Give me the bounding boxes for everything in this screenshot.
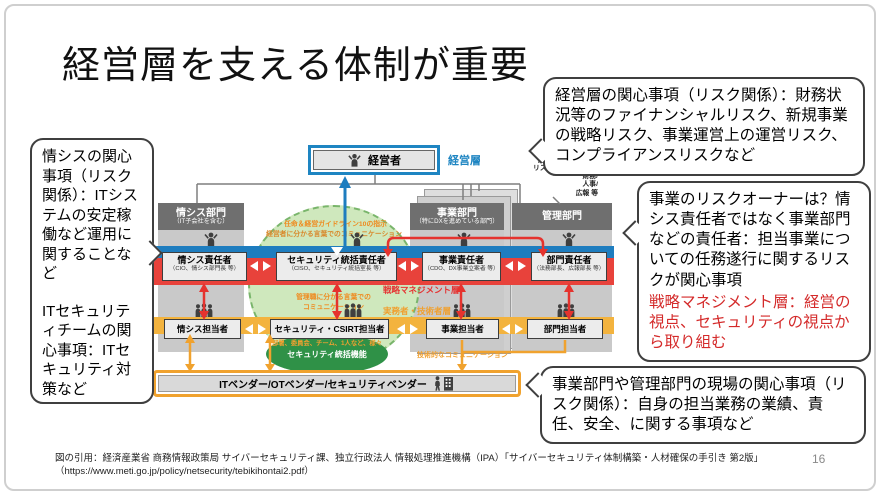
note-appointment: 任命＆経営ガイドライン10の指示 [258,218,413,228]
manager-sub: （CISO、セキュリティ統括室長 等） [277,266,396,272]
manager-title: 事業責任者 [423,255,500,266]
vendor-box-inner: ITベンダー/OTベンダー/セキュリティベンダー [158,375,516,392]
left-right-arrows-icon [245,324,266,334]
callout-left-paragraph-1: 情シスの関心事項（リスク関係）：ITシステムの安定稼働など運用に関することなど [42,147,142,284]
manager-title: 情シス責任者 [163,255,246,266]
left-right-arrows-icon [505,261,526,271]
citation: 図の引用：経済産業省 商務情報政策局 サイバーセキュリティ課、独立行政法人 情報… [55,452,763,479]
left-right-arrows-icon [502,324,523,334]
executive-person-icon [347,153,362,167]
people-group-icon [452,303,472,322]
person-icon [349,232,365,251]
citation-line-1: 図の引用：経済産業省 商務情報政策局 サイバーセキュリティ課、独立行政法人 情報… [55,452,763,465]
vendor-person-building-icon [433,376,455,391]
staff-box-admin: 部門担当者 [527,319,603,339]
executive-label: 経営者 [368,152,401,168]
note-technical-communication: 技術的なコミュニケーション [417,350,508,360]
staff-box-security-csirt: セキュリティ・CSIRT担当者 [270,319,389,339]
dept-it-header: 情シス部門 （IT子会社を含む） [158,203,244,230]
executive-box-inner: 経営者 [313,150,435,170]
manager-title: 部門責任者 [532,255,606,266]
note-team-forms: 部署、委員会、チーム、1人など、様々 [262,338,392,347]
left-right-arrows-icon [250,261,271,271]
page-title: 経営層を支える体制が重要 [62,34,529,89]
manager-title: セキュリティ統括責任者 [277,255,396,266]
note-exec-communication: 経営者に分かる言葉でのコミュニケーション [250,228,418,238]
manager-sub: （法務部長、広報部長 等） [532,266,606,272]
dept-business-sub: （特にDXを進めている部門） [410,219,504,226]
vendor-label: ITベンダー/OTベンダー/セキュリティベンダー [219,376,427,391]
citation-line-2: （https://www.meti.go.jp/policy/netsecuri… [55,465,763,478]
people-group-icon [194,303,214,322]
callout-midright-black-text: 事業のリスクオーナーは？情シス責任者ではなく事業部門などの責任者：担当事業につい… [649,190,859,291]
manager-box-business: 事業責任者 （CDO、DX事業立案者 等） [422,252,501,281]
people-group-icon [343,303,363,322]
dept-business-header: 事業部門 （特にDXを進めている部門） [410,203,504,230]
person-icon [561,232,577,251]
callout-botright-text: 事業部門や管理部門の現場の関心事項（リスク関係）：自身の担当業務の業績、責任、安… [552,375,854,435]
executive-layer-label: 経営層 [448,152,481,168]
callout-midright-red-text: 戦略マネジメント層：経営の視点、セキュリティの視点から取り組む [649,293,859,353]
manager-box-security: セキュリティ統括責任者 （CISO、セキュリティ統括室長 等） [276,252,397,281]
person-icon [203,232,219,251]
callout-risk-owner: 事業のリスクオーナーは？情シス責任者ではなく事業部門などの責任者：担当事業につい… [637,181,871,362]
callout-left-paragraph-2: ITセキュリティチームの関心事項：ITセキュリティ対策など [42,302,142,400]
people-group-icon [556,303,576,322]
callout-topright-text: 経営層の関心事項（リスク関係）：財務状況等のファイナンシャルリスク、新規事業の戦… [555,86,853,167]
manager-box-admin: 部門責任者 （法務部長、広報部長 等） [531,252,607,281]
left-right-arrows-icon [398,261,419,271]
operational-layer-label: 実務者・技術者層 [383,305,451,317]
person-icon [456,232,472,251]
callout-executive-concerns: 経営層の関心事項（リスク関係）：財務状況等のファイナンシャルリスク、新規事業の戦… [543,77,865,176]
vendor-box: ITベンダー/OTベンダー/セキュリティベンダー [153,370,521,397]
dept-it-name: 情シス部門 [158,208,244,219]
callout-it-concerns: 情シスの関心事項（リスク関係）：ITシステムの安定稼働など運用に関することなど … [30,138,154,404]
security-function-label: セキュリティ統括機能 [266,349,388,360]
strategic-layer-label: 戦略マネジメント層 [383,284,460,296]
staff-box-it: 情シス担当者 [164,319,241,339]
dept-admin-name: 管理部門 [512,211,612,222]
executive-box: 経営者 [308,145,440,175]
manager-sub: （CIO、情シス部門長 等） [163,266,246,272]
dept-it-sub: （IT子会社を含む） [158,219,244,226]
left-right-arrows-icon [397,324,418,334]
dept-admin-header: 管理部門 [512,203,612,230]
callout-field-concerns: 事業部門や管理部門の現場の関心事項（リスク関係）：自身の担当業務の業績、責任、安… [540,366,866,444]
note-manager-communication: 管理職に分かる言葉での コミュニケーション [276,291,391,311]
dept-business-name: 事業部門 [410,208,504,219]
manager-sub: （CDO、DX事業立案者 等） [423,266,500,272]
staff-box-business: 事業担当者 [426,319,499,339]
manager-box-it: 情シス責任者 （CIO、情シス部門長 等） [162,252,247,281]
page-number: 16 [812,452,825,466]
